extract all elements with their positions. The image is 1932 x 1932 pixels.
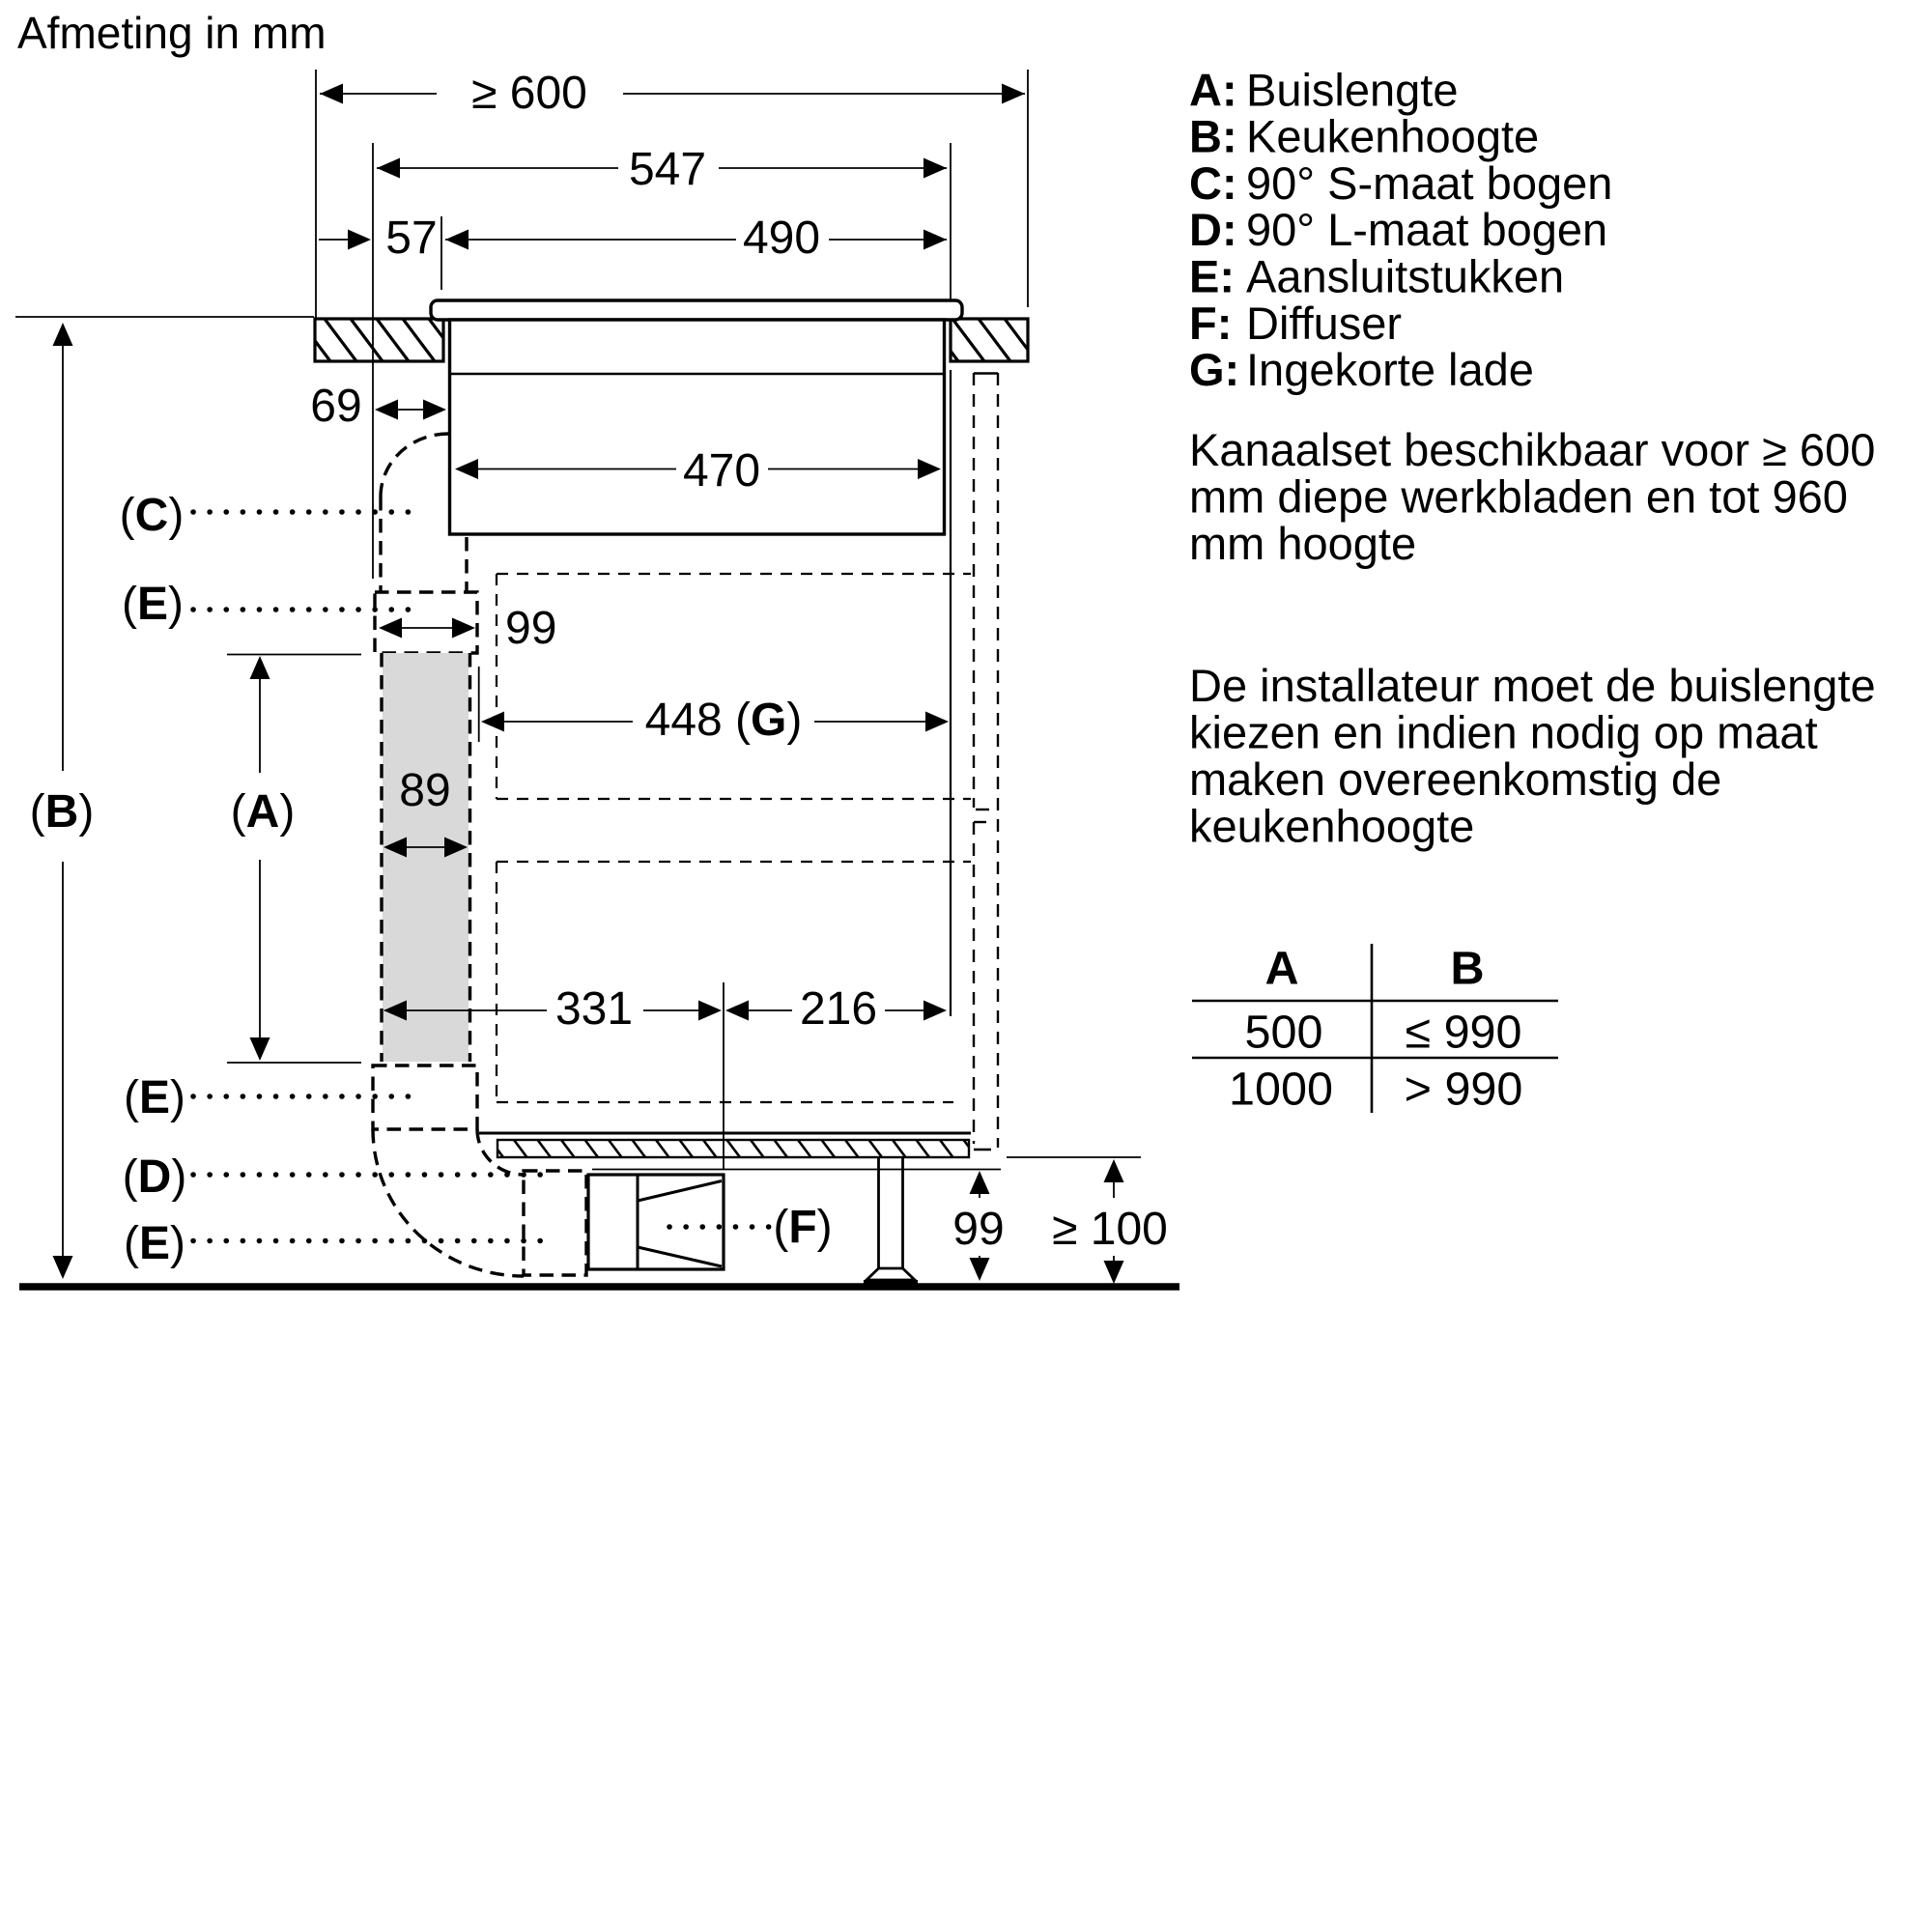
svg-text:547: 547	[629, 144, 706, 195]
svg-text:E:Aansluitstukken: E:Aansluitstukken	[1189, 251, 1564, 302]
svg-text:216: 216	[800, 983, 877, 1035]
svg-text:1000: 1000	[1229, 1063, 1333, 1115]
svg-text:A:Buislengte: A:Buislengte	[1189, 64, 1459, 115]
svg-text:> 990: > 990	[1405, 1063, 1523, 1115]
svg-text:F:Diffuser: F:Diffuser	[1189, 298, 1402, 349]
svg-text:69: 69	[310, 381, 361, 432]
svg-text:Kanaalset beschikbaar voor ≥ 6: Kanaalset beschikbaar voor ≥ 600	[1189, 424, 1875, 475]
svg-text:89: 89	[399, 765, 450, 816]
svg-text:≥ 600: ≥ 600	[471, 68, 587, 119]
svg-text:B: B	[1450, 942, 1484, 994]
svg-text:mm hoogte: mm hoogte	[1189, 518, 1416, 569]
svg-text:500: 500	[1245, 1006, 1323, 1058]
svg-text:57: 57	[385, 213, 437, 264]
svg-text:maken overeenkomstig de: maken overeenkomstig de	[1189, 753, 1721, 805]
svg-text:De installateur moet de buisle: De installateur moet de buislengte	[1189, 660, 1876, 711]
svg-text:(C): (C)	[120, 490, 185, 541]
svg-text:(B): (B)	[30, 786, 95, 838]
svg-text:A: A	[1264, 942, 1298, 994]
svg-text:D:90° L-maat bogen: D:90° L-maat bogen	[1189, 204, 1607, 255]
svg-text:331: 331	[555, 983, 633, 1035]
svg-text:C:90° S-maat bogen: C:90° S-maat bogen	[1189, 157, 1612, 209]
svg-text:Afmeting in mm: Afmeting in mm	[17, 8, 327, 58]
svg-text:≤ 990: ≤ 990	[1405, 1006, 1521, 1058]
svg-text:(A): (A)	[231, 786, 296, 838]
svg-text:≥ 100: ≥ 100	[1052, 1204, 1168, 1255]
svg-text:99: 99	[952, 1204, 1004, 1255]
svg-text:(E): (E)	[124, 1072, 185, 1123]
svg-text:(D): (D)	[123, 1151, 187, 1203]
svg-text:490: 490	[743, 213, 820, 264]
svg-text:keukenhoogte: keukenhoogte	[1189, 800, 1474, 851]
svg-text:mm diepe werkbladen en tot 960: mm diepe werkbladen en tot 960	[1189, 470, 1848, 522]
svg-text:(E): (E)	[122, 579, 184, 630]
svg-text:(E): (E)	[124, 1218, 185, 1269]
svg-text:(F): (F)	[773, 1202, 832, 1253]
svg-text:448 (G): 448 (G)	[645, 695, 803, 746]
svg-text:99: 99	[505, 603, 556, 654]
svg-text:470: 470	[683, 445, 760, 497]
svg-text:kiezen en indien nodig op maat: kiezen en indien nodig op maat	[1189, 706, 1818, 757]
